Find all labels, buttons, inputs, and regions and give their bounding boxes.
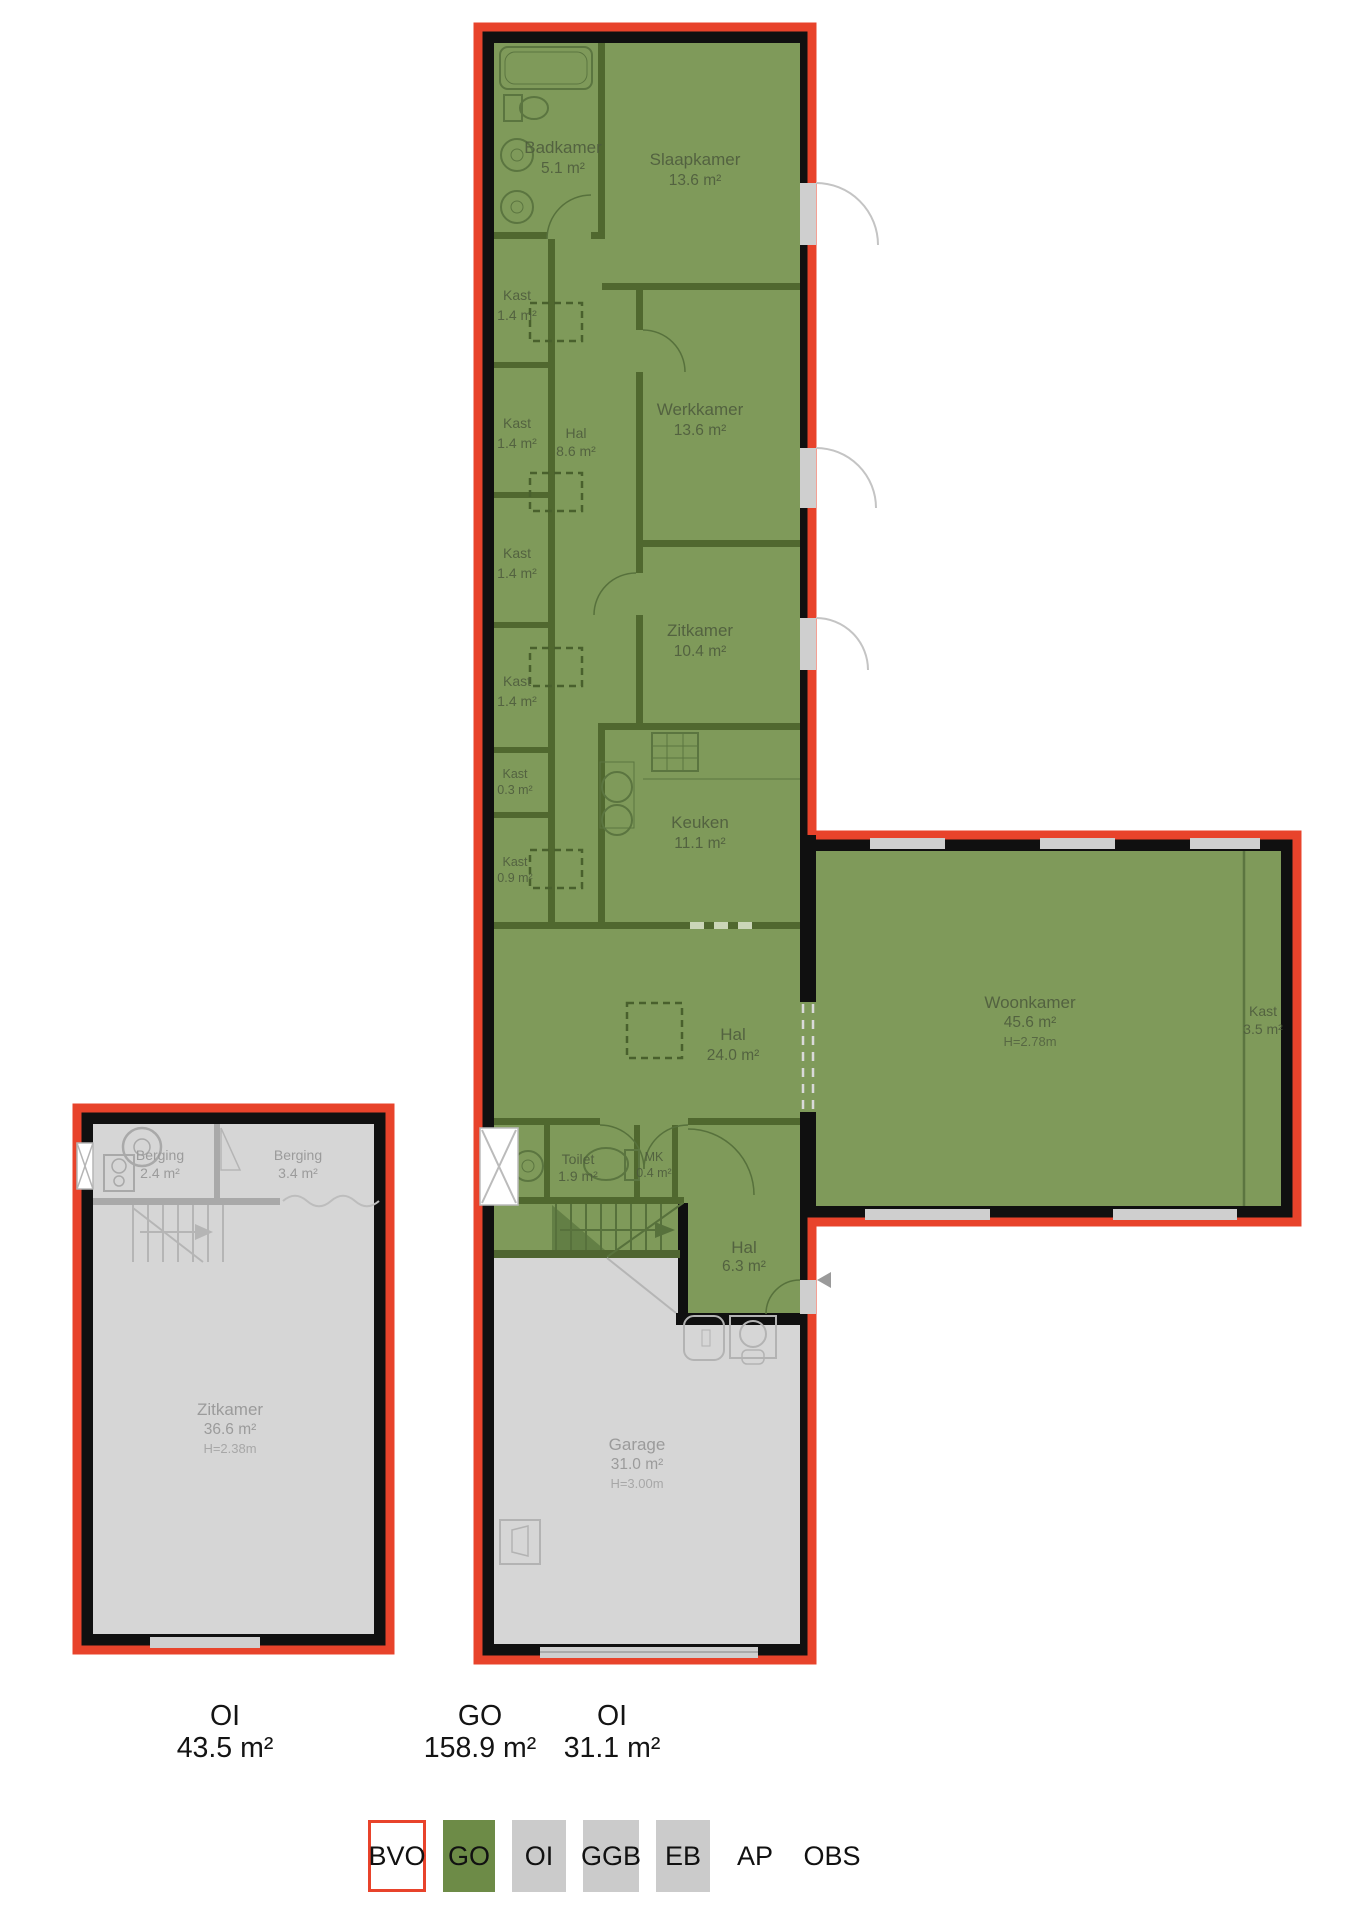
total-value: 31.1 m²: [492, 1732, 732, 1764]
room-label-kast3: Kast: [503, 545, 531, 561]
total-label: OI: [105, 1700, 345, 1732]
room-area-kast6: 0.9 m²: [497, 871, 532, 885]
room-area-woonkamer: 45.6 m²: [1004, 1014, 1057, 1031]
room-area-berging1: 2.4 m²: [140, 1165, 180, 1181]
room-label-hal3: Hal: [731, 1238, 757, 1257]
room-area-werkkamer: 13.6 m²: [674, 422, 727, 439]
annex-building: Berging 2.4 m² Berging 3.4 m² Zitkamer 3…: [77, 1108, 390, 1650]
room-area-zitkamer: 10.4 m²: [674, 643, 727, 660]
total-value: 43.5 m²: [105, 1732, 345, 1764]
room-area-kast3: 1.4 m²: [497, 565, 537, 581]
room-area-hal3: 6.3 m²: [722, 1258, 766, 1275]
legend-item-go[interactable]: GO: [443, 1820, 495, 1892]
entrance-door-icon: [480, 1128, 518, 1205]
room-area-annex-zitkamer: 36.6 m²: [204, 1421, 257, 1438]
floorplan-canvas: Berging 2.4 m² Berging 3.4 m² Zitkamer 3…: [0, 0, 1358, 1920]
entrance-marker-icon: [817, 1272, 831, 1288]
room-label-kast4: Kast: [503, 673, 531, 689]
total-annex-oi: OI 43.5 m²: [105, 1700, 345, 1764]
room-area-badkamer: 5.1 m²: [541, 160, 585, 177]
annex-window: [150, 1637, 260, 1648]
floorplan-drawing: Berging 2.4 m² Berging 3.4 m² Zitkamer 3…: [0, 0, 1358, 1920]
legend-item-bvo[interactable]: BVO: [368, 1820, 426, 1892]
room-label-garage: Garage: [609, 1435, 666, 1454]
room-label-annex-zitkamer: Zitkamer: [197, 1400, 263, 1419]
room-area-garage: 31.0 m²: [611, 1456, 664, 1473]
room-area-kast5: 0.3 m²: [497, 783, 532, 797]
legend: BVO GO OI GGB EB AP OBS: [368, 1820, 864, 1892]
room-label-hal1: Hal: [565, 425, 586, 441]
room-label-badkamer: Badkamer: [524, 138, 602, 157]
total-label: OI: [492, 1700, 732, 1732]
exterior-door-swing-icons: [816, 183, 878, 670]
room-area-slaapkamer: 13.6 m²: [669, 172, 722, 189]
room-area-berging2: 3.4 m²: [278, 1165, 318, 1181]
room-area-keuken: 11.1 m²: [674, 835, 725, 852]
room-label-hal2: Hal: [720, 1025, 746, 1044]
room-area-kast2: 1.4 m²: [497, 435, 537, 451]
legend-item-eb[interactable]: EB: [656, 1820, 710, 1892]
room-label-werkkamer: Werkkamer: [657, 400, 744, 419]
annex-wall: [93, 1198, 280, 1205]
wall: [800, 835, 816, 1002]
legend-item-oi[interactable]: OI: [512, 1820, 566, 1892]
room-area-hal2: 24.0 m²: [707, 1047, 760, 1064]
legend-item-ggb[interactable]: GGB: [583, 1820, 639, 1892]
wall: [494, 1250, 680, 1258]
room-area-hal1: 8.6 m²: [556, 443, 596, 459]
wall: [800, 1112, 816, 1210]
room-area-kast4: 1.4 m²: [497, 693, 537, 709]
room-label-mk: MK: [645, 1150, 664, 1164]
room-area-kast1: 1.4 m²: [497, 307, 537, 323]
room-label-kast2: Kast: [503, 415, 531, 431]
room-height-woonkamer: H=2.78m: [1003, 1034, 1056, 1049]
main-building: Badkamer 5.1 m² Slaapkamer 13.6 m² Kast …: [478, 27, 1297, 1660]
room-label-kast7: Kast: [1249, 1003, 1277, 1019]
wall: [676, 1313, 802, 1325]
annex-wall: [214, 1124, 220, 1198]
total-garage-oi: OI 31.1 m²: [492, 1700, 732, 1764]
legend-item-ap[interactable]: AP: [727, 1820, 783, 1892]
room-label-keuken: Keuken: [671, 813, 729, 832]
room-label-kast5: Kast: [502, 767, 528, 781]
room-label-woonkamer: Woonkamer: [984, 993, 1076, 1012]
room-area-kast7: 3.5 m²: [1243, 1021, 1283, 1037]
room-label-berging1: Berging: [136, 1147, 184, 1163]
room-area-toilet: 1.9 m²: [558, 1168, 598, 1184]
room-height-garage: H=3.00m: [610, 1476, 663, 1491]
room-area-mk: 0.4 m²: [636, 1166, 671, 1180]
room-label-kast6: Kast: [502, 855, 528, 869]
room-label-kast1: Kast: [503, 287, 531, 303]
room-label-slaapkamer: Slaapkamer: [650, 150, 741, 169]
wall: [678, 1203, 688, 1323]
room-label-zitkamer: Zitkamer: [667, 621, 733, 640]
room-height-annex-zitkamer: H=2.38m: [203, 1441, 256, 1456]
room-label-berging2: Berging: [274, 1147, 322, 1163]
room-label-toilet: Toilet: [562, 1151, 595, 1167]
legend-item-obs[interactable]: OBS: [800, 1820, 864, 1892]
